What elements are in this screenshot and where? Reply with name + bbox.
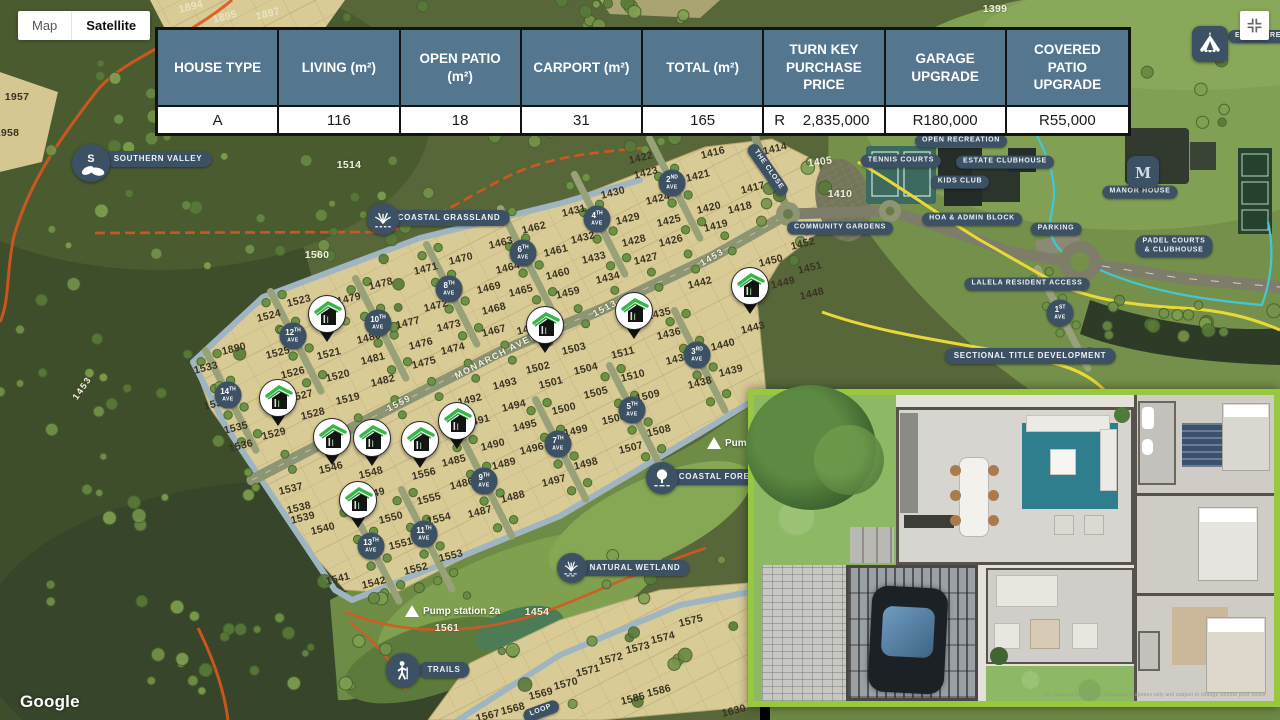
- svg-text:M: M: [1135, 165, 1151, 182]
- floorplan-fixture: [1142, 439, 1153, 455]
- avenue-badge: 6THAVE: [510, 240, 537, 267]
- lot-number: 1430: [600, 184, 627, 202]
- lot-number: 1540: [310, 520, 337, 538]
- lot-number: 1535: [223, 419, 250, 437]
- lot-number: 1524: [256, 307, 283, 325]
- lot-number: 1521: [316, 345, 343, 363]
- price-amount: 2,835,000: [803, 112, 870, 129]
- floorplan-plant: [990, 647, 1008, 665]
- header-total: TOTAL (m²): [643, 30, 764, 107]
- floorplan-kitchen-island: [904, 515, 954, 528]
- lot-number: 1449: [770, 274, 797, 292]
- floorplan-chair: [950, 465, 961, 476]
- house-marker[interactable]: [525, 306, 565, 356]
- lot-number: 1958: [0, 127, 19, 139]
- header-turn-key-price: TURN KEY PURCHASE PRICE: [764, 30, 885, 107]
- avenue-badge: 11THAVE: [411, 521, 438, 548]
- header-garage-upgrade: GARAGE UPGRADE: [886, 30, 1007, 107]
- lot-number: 1630: [721, 702, 748, 720]
- street-name: 1559: [385, 393, 413, 414]
- lot-number: 1487: [467, 503, 494, 521]
- header-carport: CARPORT (m²): [522, 30, 643, 107]
- hiker-icon: [386, 653, 420, 687]
- lot-number: 1897: [255, 5, 282, 23]
- floorplan-armchair: [1084, 515, 1104, 535]
- lot-number: 1481: [360, 350, 387, 368]
- lot-number: 1443: [740, 319, 767, 337]
- avenue-badge: 3RDAVE: [684, 342, 711, 369]
- lot-number: 1438: [687, 374, 714, 392]
- lot-number: 1461: [543, 242, 570, 260]
- house-logo-icon: [731, 267, 769, 305]
- cell-covered-patio-upgrade: R55,000: [1007, 107, 1128, 133]
- amenity-label: HOA & ADMIN BLOCK: [922, 213, 1022, 226]
- floorplan-pillows: [1224, 405, 1268, 417]
- forest-tree-icon: [646, 462, 678, 494]
- lot-number: 1575: [678, 612, 705, 630]
- avenue-badge: 4THAVE: [584, 206, 611, 233]
- house-marker[interactable]: [400, 421, 440, 471]
- floorplan-chair: [950, 515, 961, 526]
- floorplan-armchair: [1054, 515, 1074, 535]
- floorplan-driveway: [762, 565, 846, 701]
- lot-number: 1894: [178, 0, 205, 16]
- amenity-label: SECTIONAL TITLE DEVELOPMENT: [945, 348, 1116, 364]
- house-marker[interactable]: [307, 295, 347, 345]
- lot-number: 1496: [519, 440, 546, 458]
- lot-number: 1511: [610, 344, 636, 361]
- lot-number: 1478: [368, 275, 395, 293]
- cell-carport: 31: [522, 107, 643, 133]
- lot-number: 1895: [212, 8, 239, 26]
- lot-number: 1520: [325, 367, 352, 385]
- lot-number: 1418: [727, 199, 754, 217]
- street-name: 1453: [698, 246, 726, 268]
- amenity-label: COMMUNITY GARDENS: [787, 222, 893, 235]
- fullscreen-icon: [1244, 15, 1265, 36]
- lot-number: 1519: [335, 390, 362, 408]
- cell-garage-upgrade: R180,000: [886, 107, 1007, 133]
- house-marker[interactable]: [437, 402, 477, 452]
- lot-number: 1508: [646, 422, 673, 440]
- lot-number: 1501: [538, 374, 565, 392]
- cell-open-patio: 18: [401, 107, 522, 133]
- lot-number: 1470: [448, 250, 475, 268]
- lot-number: 1467: [481, 322, 508, 340]
- floorplan-chair: [950, 490, 961, 501]
- house-logo-icon: [313, 418, 351, 456]
- lot-number: 1574: [650, 629, 677, 647]
- pump-label: Pump station 2a: [405, 605, 500, 617]
- street-name: 1453: [70, 374, 93, 401]
- house-marker[interactable]: [730, 267, 770, 317]
- lot-number: 1476: [408, 335, 435, 353]
- lot-number: 1439: [718, 362, 745, 380]
- house-logo-icon: [615, 292, 653, 330]
- amenity-label: TENNIS COURTS: [861, 155, 941, 168]
- floorplan-wall: [1134, 593, 1274, 596]
- lot-number: 1471: [413, 260, 440, 278]
- floorplan-dining-table: [959, 457, 989, 537]
- lot-number: 1570: [553, 675, 580, 693]
- pump-triangle-icon: [405, 605, 419, 617]
- lot-number: 1585: [620, 690, 647, 708]
- lot-number: 1561: [435, 622, 460, 634]
- lot-number: 1459: [555, 284, 582, 302]
- lot-number: 1507: [618, 439, 645, 457]
- header-covered-patio-upgrade: COVERED PATIO UPGRADE: [1007, 30, 1128, 107]
- floorplan-outdoor-sofa: [996, 575, 1058, 607]
- floorplan-sofa: [1100, 429, 1117, 491]
- lot-number: 1454: [525, 606, 550, 618]
- map-button[interactable]: Map: [18, 11, 71, 40]
- floorplan-kitchen: [900, 413, 918, 513]
- amenity-label: KIDS CLUB: [931, 176, 989, 189]
- pricing-table-row: A 116 18 31 165 R 2,835,000 R180,000 R55…: [158, 107, 1128, 133]
- lot-number: 1425: [656, 212, 683, 230]
- floorplan-wall: [1134, 493, 1274, 496]
- lot-number: 1537: [278, 480, 305, 498]
- lot-number: 1541: [325, 570, 352, 588]
- amenity-label: LALELA RESIDENT ACCESS: [965, 278, 1090, 291]
- svg-text:S: S: [87, 153, 94, 165]
- header-living: LIVING (m²): [279, 30, 400, 107]
- lot-number: 1493: [492, 375, 519, 393]
- pricing-table-header: HOUSE TYPE LIVING (m²) OPEN PATIO (m²) C…: [158, 30, 1128, 107]
- lot-number: 1442: [687, 274, 714, 292]
- floorplan-outdoor-chair: [994, 623, 1020, 649]
- lot-number: 1495: [512, 417, 539, 435]
- lot-number: 1542: [361, 574, 388, 592]
- lot-number: 1573: [625, 639, 652, 657]
- lot-number: 1560: [305, 249, 330, 261]
- pump-triangle-icon: [707, 437, 721, 449]
- cell-house-type: A: [158, 107, 279, 133]
- floorplan-outdoor-chair: [1072, 623, 1098, 649]
- floorplan-chair: [988, 515, 999, 526]
- lot-number: 1482: [370, 372, 397, 390]
- cell-turn-key-price: R 2,835,000: [764, 107, 885, 133]
- floorplan-sofa: [1026, 415, 1110, 432]
- avenue-badge: 13THAVE: [358, 533, 385, 560]
- lot-number: 1423: [633, 164, 660, 182]
- house-logo-icon: [401, 421, 439, 459]
- lot-number: 1567: [475, 707, 502, 720]
- floorplan-chair: [988, 490, 999, 501]
- lot-number: 1488: [500, 488, 527, 506]
- lot-number: 1433: [581, 249, 608, 267]
- lot-number: 1475: [411, 354, 438, 372]
- house-logo-icon: [259, 379, 297, 417]
- lot-number: 1489: [491, 455, 518, 473]
- amenity-label: TRAILS: [418, 662, 469, 678]
- lot-number: 1498: [573, 455, 600, 473]
- avenue-badge: 7THAVE: [545, 431, 572, 458]
- lot-number: 1571: [575, 662, 602, 680]
- house-marker[interactable]: [258, 379, 298, 429]
- lot-number: 1469: [476, 279, 503, 297]
- amenity-label: ESTATE CLUBHOUSE: [956, 156, 1054, 169]
- avenue-badge: 10THAVE: [365, 310, 392, 337]
- lot-number: 1502: [525, 359, 552, 377]
- lot-number: 1497: [541, 472, 568, 490]
- lot-number: 1890: [221, 340, 248, 358]
- lot-number: 1460: [545, 265, 572, 283]
- house-logo-icon: [339, 481, 377, 519]
- house-logo-icon: [353, 419, 391, 457]
- avenue-badge: 2NDAVE: [659, 170, 686, 197]
- house-marker[interactable]: [338, 481, 378, 531]
- lot-number: 1473: [436, 317, 463, 335]
- floorplan-fixture: [1142, 407, 1154, 429]
- house-logo-icon: [526, 306, 564, 344]
- lot-number: 1452: [790, 235, 817, 253]
- house-marker[interactable]: [312, 418, 352, 468]
- lot-number: 1417: [740, 179, 767, 197]
- house-marker[interactable]: [352, 419, 392, 469]
- lot-number: 1468: [481, 300, 508, 318]
- lot-number: 1448: [799, 285, 826, 303]
- lot-number: 1510: [620, 367, 647, 385]
- header-house-type: HOUSE TYPE: [158, 30, 279, 107]
- lot-number: 1552: [403, 560, 430, 578]
- lot-number: 1416: [700, 144, 727, 162]
- lot-number: 1536: [228, 437, 255, 455]
- floorplan-steps: [850, 527, 894, 563]
- amenity-label: OPEN RECREATION: [915, 135, 1007, 148]
- lot-number: 1436: [656, 325, 683, 343]
- floorplan-car-windshield: [881, 606, 936, 659]
- floorplan-outdoor-table: [1030, 619, 1060, 649]
- lot-number: 1465: [508, 282, 535, 300]
- avenue-badge: 12THAVE: [280, 323, 307, 350]
- lot-number: 1586: [646, 682, 673, 700]
- amenity-label: COASTAL GRASSLAND: [389, 210, 510, 226]
- lot-number: 1419: [703, 217, 730, 235]
- floorplan-tree: [814, 425, 884, 495]
- lot-number: 1451: [797, 259, 824, 277]
- pump-text: Pump station 2a: [423, 606, 500, 617]
- floorplan-plant: [1114, 407, 1130, 423]
- satellite-button[interactable]: Satellite: [71, 11, 150, 40]
- avenue-badge: 14THAVE: [215, 382, 242, 409]
- manor-monogram-icon: M: [1127, 156, 1159, 188]
- lot-number: 1494: [501, 397, 528, 415]
- lot-number: 1550: [378, 509, 405, 527]
- floorplan-inset: The depicted home is for illustrative pu…: [748, 389, 1280, 707]
- lot-number: 1485: [441, 452, 468, 470]
- wetland-icon: [557, 553, 587, 583]
- header-open-patio: OPEN PATIO (m²): [401, 30, 522, 107]
- lot-number: 1422: [628, 149, 655, 167]
- lot-number: 1410: [828, 188, 853, 200]
- lot-number: 1500: [551, 400, 578, 418]
- grassland-icon: [367, 203, 399, 235]
- lot-number: 1957: [5, 91, 30, 103]
- lot-number: 1429: [615, 210, 642, 228]
- cell-living: 116: [279, 107, 400, 133]
- avenue-badge: 5THAVE: [619, 397, 646, 424]
- lot-number: 1462: [521, 219, 548, 237]
- house-logo-icon: [308, 295, 346, 333]
- map-viewport[interactable]: 1894189518971957195813991514156014051410…: [0, 0, 1280, 720]
- amenity-label: SOUTHERN VALLEY: [105, 151, 212, 167]
- pricing-table: HOUSE TYPE LIVING (m²) OPEN PATIO (m²) C…: [155, 27, 1131, 136]
- floorplan-pillows: [1208, 619, 1264, 632]
- house-logo-icon: [438, 402, 476, 440]
- lot-number: 1514: [337, 159, 362, 171]
- map-type-control: Map Satellite: [18, 11, 150, 40]
- avenue-badge: 1STAVE: [1047, 300, 1074, 327]
- lot-number: 1474: [440, 340, 467, 358]
- southern-valley-icon: S: [72, 144, 110, 182]
- fullscreen-button[interactable]: [1240, 11, 1269, 40]
- lot-number: 1490: [480, 436, 507, 454]
- price-currency: R: [774, 112, 785, 129]
- lot-number: 1427: [633, 250, 660, 268]
- lot-number: 1572: [598, 650, 625, 668]
- amenity-label: NATURAL WETLAND: [581, 560, 690, 576]
- lot-number: 1553: [438, 547, 465, 565]
- avenue-badge: 8THAVE: [436, 276, 463, 303]
- lot-number: 1504: [573, 360, 600, 378]
- lot-number: 1555: [416, 490, 443, 508]
- floorplan-chair: [988, 465, 999, 476]
- lot-number: 1533: [193, 359, 220, 377]
- lot-number: 1477: [395, 314, 422, 332]
- floorplan-bathroom: [1138, 631, 1160, 671]
- floorplan-pillows: [1200, 509, 1256, 522]
- cell-total: 165: [643, 107, 764, 133]
- tent-icon: [1192, 26, 1228, 62]
- house-marker[interactable]: [614, 292, 654, 342]
- inset-disclaimer: The depicted home is for illustrative pu…: [1042, 692, 1266, 698]
- lot-number: 1426: [658, 232, 685, 250]
- amenity-label: PADEL COURTS & CLUBHOUSE: [1136, 235, 1213, 257]
- lot-number: 1440: [710, 336, 737, 354]
- avenue-badge: 9THAVE: [471, 468, 498, 495]
- google-logo[interactable]: Google: [20, 692, 80, 712]
- lot-number: 1420: [696, 199, 723, 217]
- lot-number: 1428: [621, 232, 648, 250]
- amenity-label: LOOP: [522, 699, 561, 720]
- lot-number: 1421: [685, 167, 712, 185]
- lot-number: 1505: [583, 384, 610, 402]
- amenity-label: PARKING: [1031, 223, 1082, 236]
- lot-number: 1434: [595, 269, 622, 287]
- lot-number: 1405: [807, 154, 833, 169]
- floorplan-coffee-table: [1050, 449, 1076, 475]
- lot-number: 1399: [983, 3, 1008, 15]
